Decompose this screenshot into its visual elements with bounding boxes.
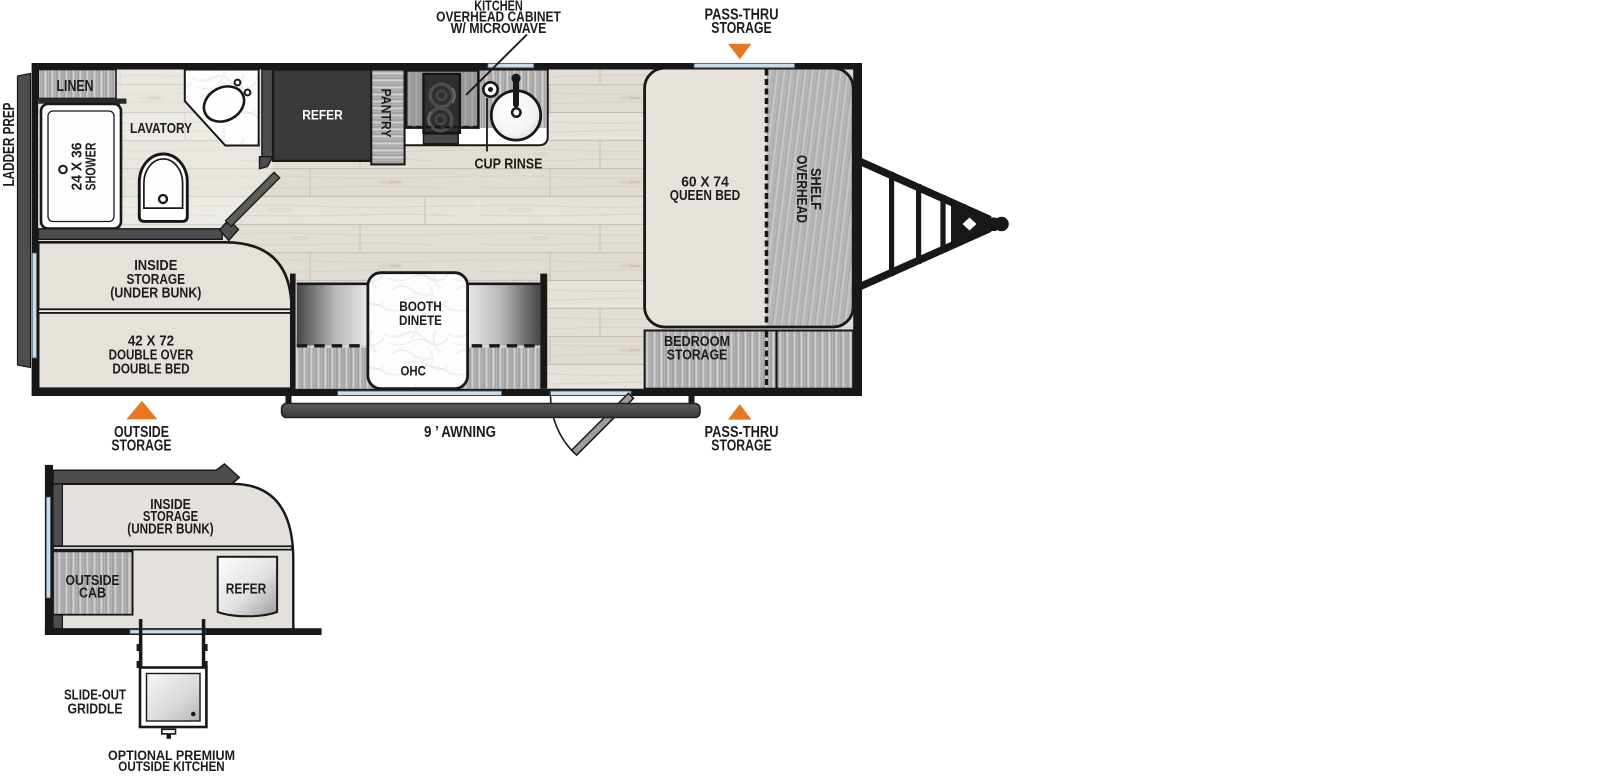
svg-text:9 ’ AWNING: 9 ’ AWNING	[424, 424, 496, 441]
svg-text:SHOWER: SHOWER	[83, 142, 100, 190]
svg-text:STORAGE: STORAGE	[711, 20, 772, 37]
svg-text:REFER: REFER	[226, 582, 267, 598]
svg-text:DOUBLE BED: DOUBLE BED	[112, 361, 189, 377]
svg-text:(UNDER BUNK): (UNDER BUNK)	[127, 521, 214, 537]
svg-text:(UNDER BUNK): (UNDER BUNK)	[110, 286, 201, 302]
svg-text:REFER: REFER	[302, 108, 343, 123]
svg-text:STORAGE: STORAGE	[711, 437, 772, 454]
svg-text:OUTSIDE KITCHEN: OUTSIDE KITCHEN	[118, 759, 224, 774]
svg-text:STORAGE: STORAGE	[111, 437, 171, 454]
svg-text:W/ MICROWAVE: W/ MICROWAVE	[451, 21, 547, 37]
svg-text:OHC: OHC	[401, 362, 426, 378]
svg-text:GRIDDLE: GRIDDLE	[68, 702, 123, 718]
svg-text:STORAGE: STORAGE	[667, 346, 728, 363]
svg-text:LINEN: LINEN	[57, 78, 94, 95]
svg-text:CUP RINSE: CUP RINSE	[475, 157, 543, 173]
svg-text:LADDER PREP: LADDER PREP	[1, 102, 18, 186]
svg-text:DINETE: DINETE	[399, 312, 442, 328]
svg-text:CAB: CAB	[79, 586, 106, 602]
svg-text:QUEEN BED: QUEEN BED	[670, 187, 741, 204]
svg-text:SHELF: SHELF	[807, 168, 824, 210]
svg-text:PANTRY: PANTRY	[379, 89, 394, 138]
svg-text:LAVATORY: LAVATORY	[130, 120, 192, 137]
